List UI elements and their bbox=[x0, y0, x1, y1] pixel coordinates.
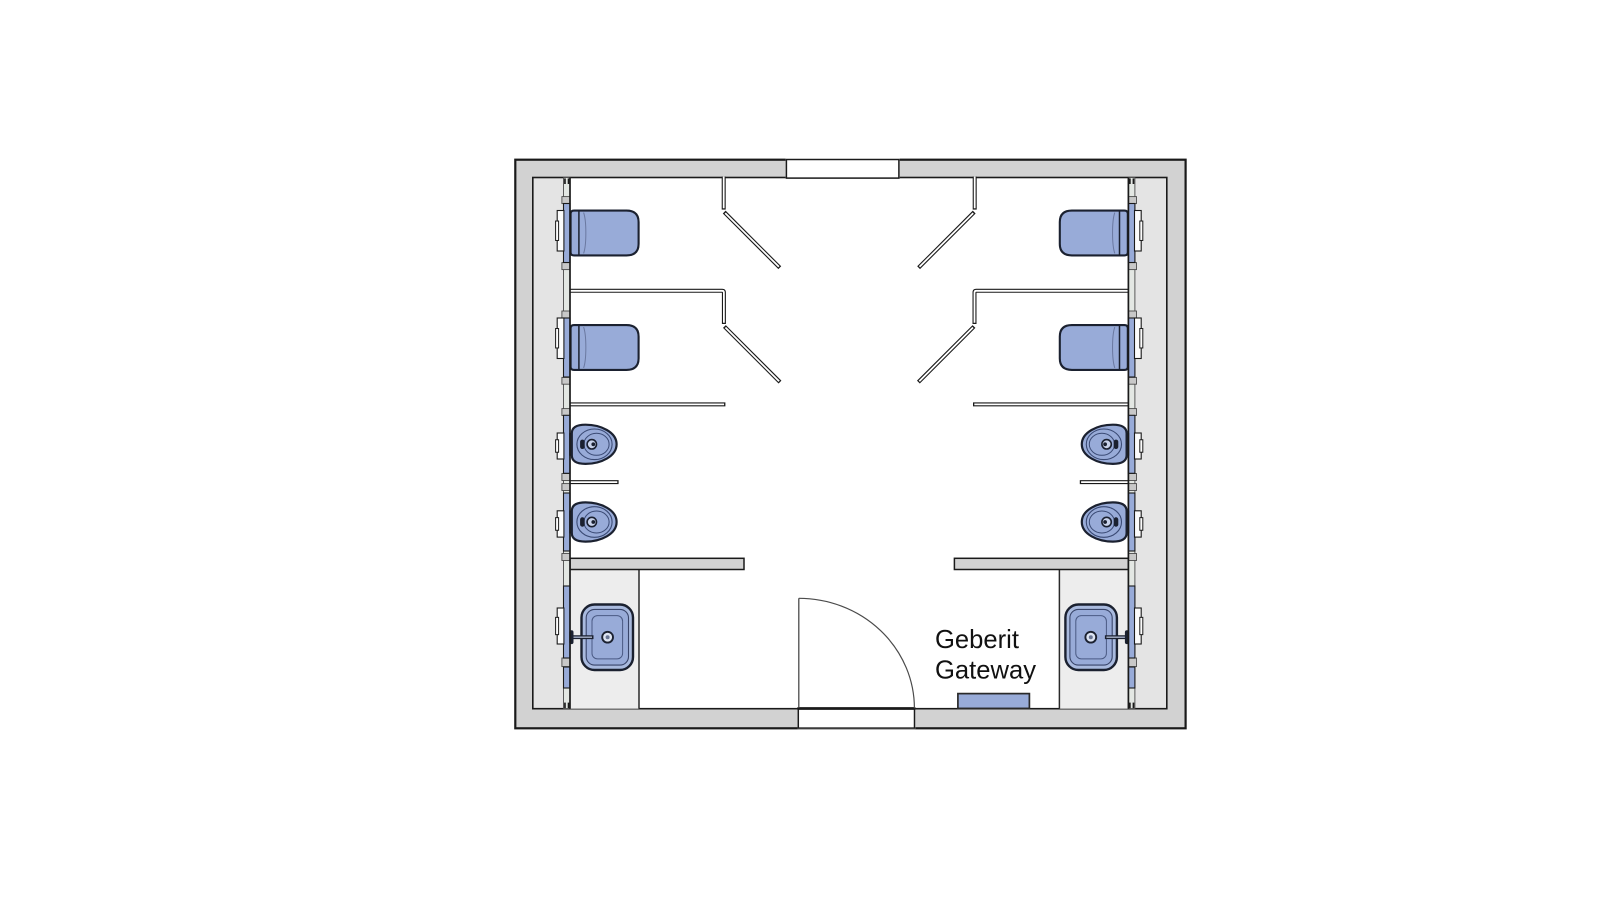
svg-text:Gateway: Gateway bbox=[935, 657, 1036, 685]
svg-text:Geberit: Geberit bbox=[935, 626, 1019, 654]
